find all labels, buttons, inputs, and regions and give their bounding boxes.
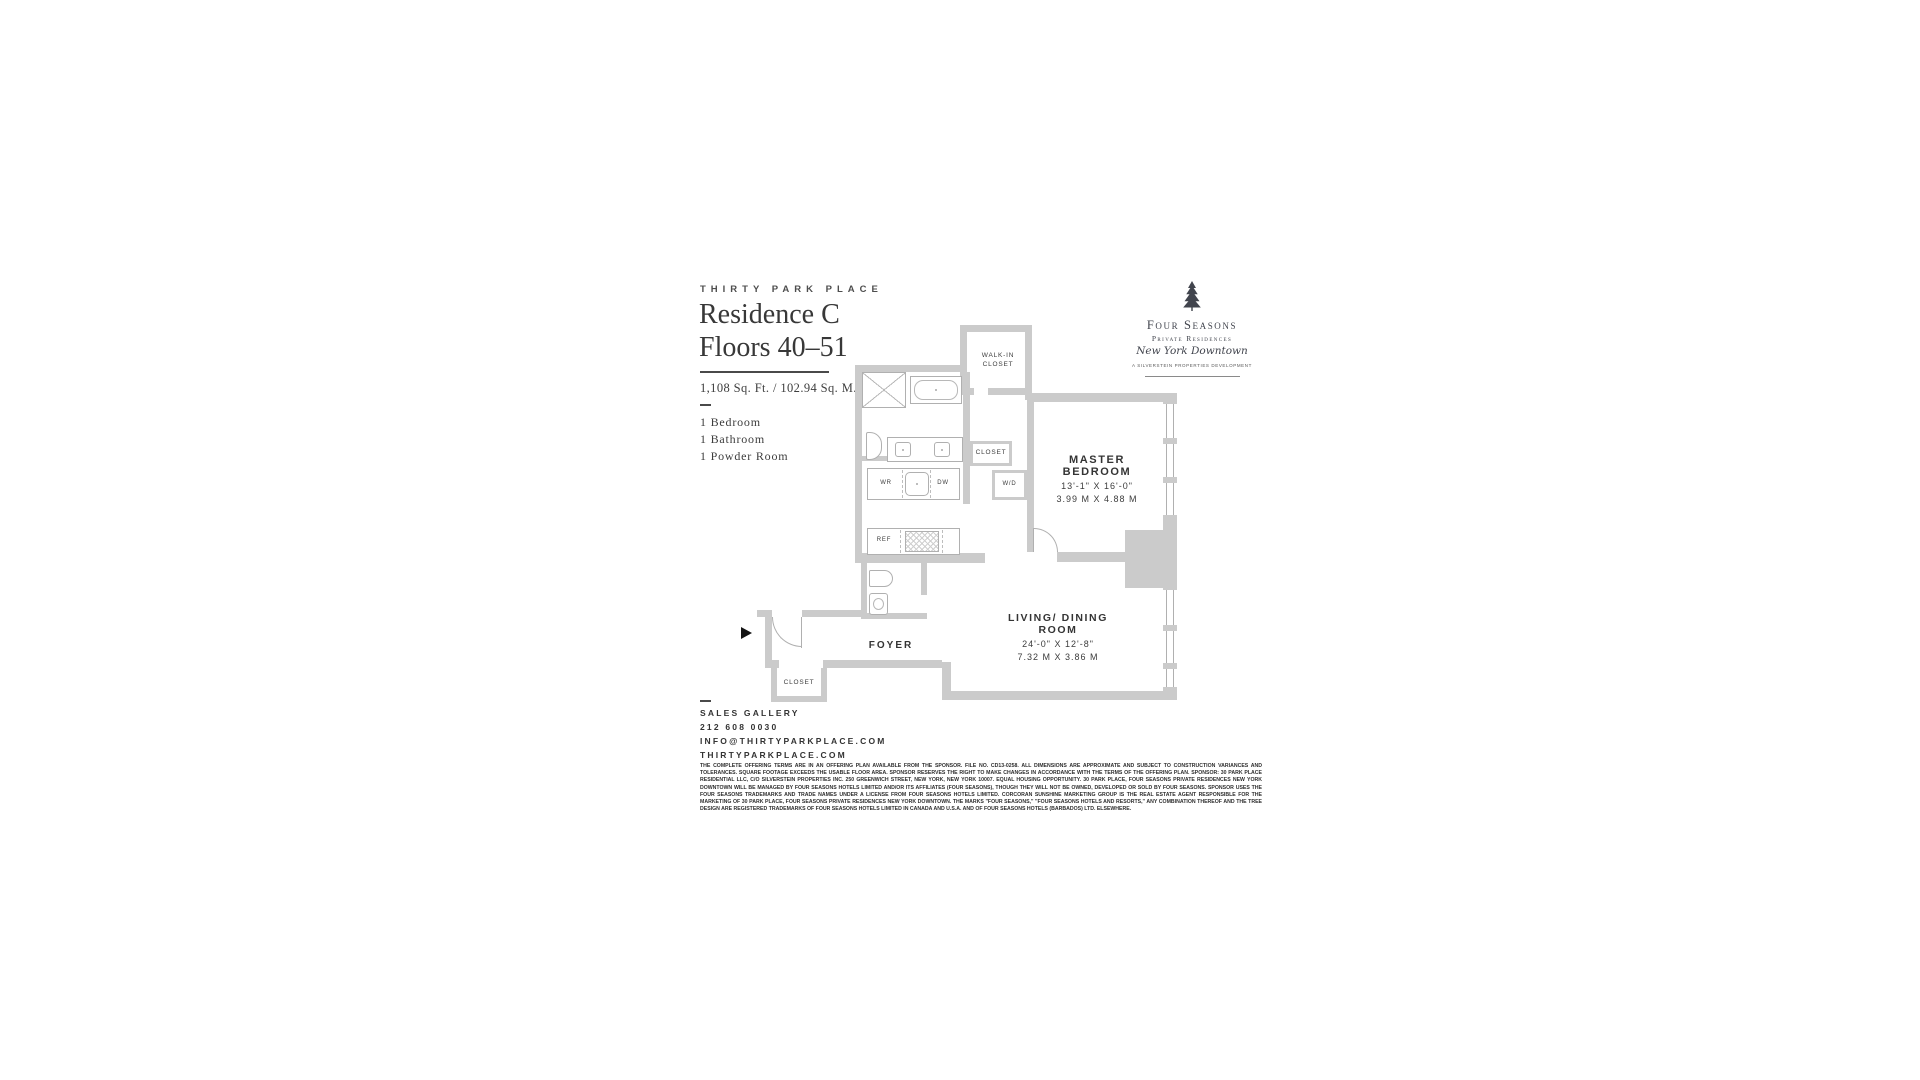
toilet-icon (869, 570, 893, 587)
entry-door-arc (772, 617, 802, 647)
living-dining-label: LIVING/ DINING ROOM 24'-0" X 12'-8" 7.32… (995, 612, 1121, 662)
washer-dryer-label: W/D (992, 481, 1027, 487)
wall (855, 365, 862, 563)
foyer-closet-label: CLOSET (773, 679, 825, 686)
bathtub-icon (910, 376, 962, 404)
wall (1032, 393, 1177, 402)
counter-divider (902, 470, 903, 498)
master-bedroom-imperial: 13'-1" X 16'-0" (1037, 481, 1157, 491)
section-dash (700, 700, 711, 702)
window (1163, 404, 1177, 438)
brand-eyebrow: THIRTY PARK PLACE (700, 284, 883, 295)
entry-door-leaf (801, 617, 802, 648)
window (1163, 669, 1177, 687)
wall (861, 563, 867, 619)
master-closet-label: CLOSET (970, 449, 1012, 456)
shower-icon (862, 372, 906, 408)
wall (765, 617, 772, 668)
email-address: INFO@THIRTYPARKPLACE.COM (700, 736, 887, 746)
wall (960, 325, 1032, 332)
sink-icon (895, 442, 911, 457)
floorplan-page: THIRTY PARK PLACE Residence C Floors 40–… (0, 0, 1920, 1080)
foyer-label: FOYER (857, 640, 925, 651)
living-dining-name: LIVING/ DINING ROOM (995, 612, 1121, 636)
sink-icon (934, 442, 950, 457)
structural-column (1125, 530, 1177, 588)
wall (757, 610, 772, 617)
bedroom-door-arc (1034, 528, 1058, 552)
wall (855, 365, 967, 372)
wall (963, 372, 970, 504)
entry-arrow-icon (741, 627, 752, 639)
master-bedroom-metric: 3.99 M X 4.88 M (1037, 494, 1157, 504)
phone-number: 212 608 0030 (700, 722, 778, 732)
floor-plan: WR DW REF CLOSET W/D WALK-IN CLOSET MAST… (745, 325, 1215, 720)
window (1163, 444, 1177, 477)
bedroom-door-leaf (1033, 528, 1034, 552)
wall (942, 691, 1177, 700)
living-dining-imperial: 24'-0" X 12'-8" (995, 639, 1121, 649)
dishwasher-label: DW (929, 480, 957, 486)
section-dash (700, 404, 711, 406)
wall (942, 662, 951, 700)
sales-gallery-heading: SALES GALLERY (700, 708, 800, 718)
refrigerator-label: REF (869, 537, 899, 543)
living-dining-metric: 7.32 M X 3.86 M (995, 652, 1121, 662)
wine-ref-label: WR (871, 480, 901, 486)
window (1163, 631, 1177, 663)
wall (823, 660, 942, 668)
wall (1057, 552, 1130, 562)
sink-icon (869, 593, 888, 615)
legal-disclaimer: THE COMPLETE OFFERING TERMS ARE IN AN OF… (700, 763, 1262, 813)
wall (921, 563, 927, 595)
stove-icon (905, 531, 939, 552)
wall (802, 610, 861, 617)
wall (988, 388, 1032, 395)
window (1163, 483, 1177, 515)
cooktop-icon (905, 472, 929, 496)
walk-in-closet-label: WALK-IN CLOSET (967, 352, 1029, 369)
counter-divider (900, 530, 901, 553)
master-bedroom-name: MASTER BEDROOM (1037, 454, 1157, 478)
window (1163, 590, 1177, 625)
website-url: THIRTYPARKPLACE.COM (700, 750, 847, 760)
counter-divider (942, 530, 943, 553)
four-seasons-tree-icon (1181, 298, 1203, 315)
master-bedroom-label: MASTER BEDROOM 13'-1" X 16'-0" 3.99 M X … (1037, 454, 1157, 504)
wall (771, 696, 827, 702)
